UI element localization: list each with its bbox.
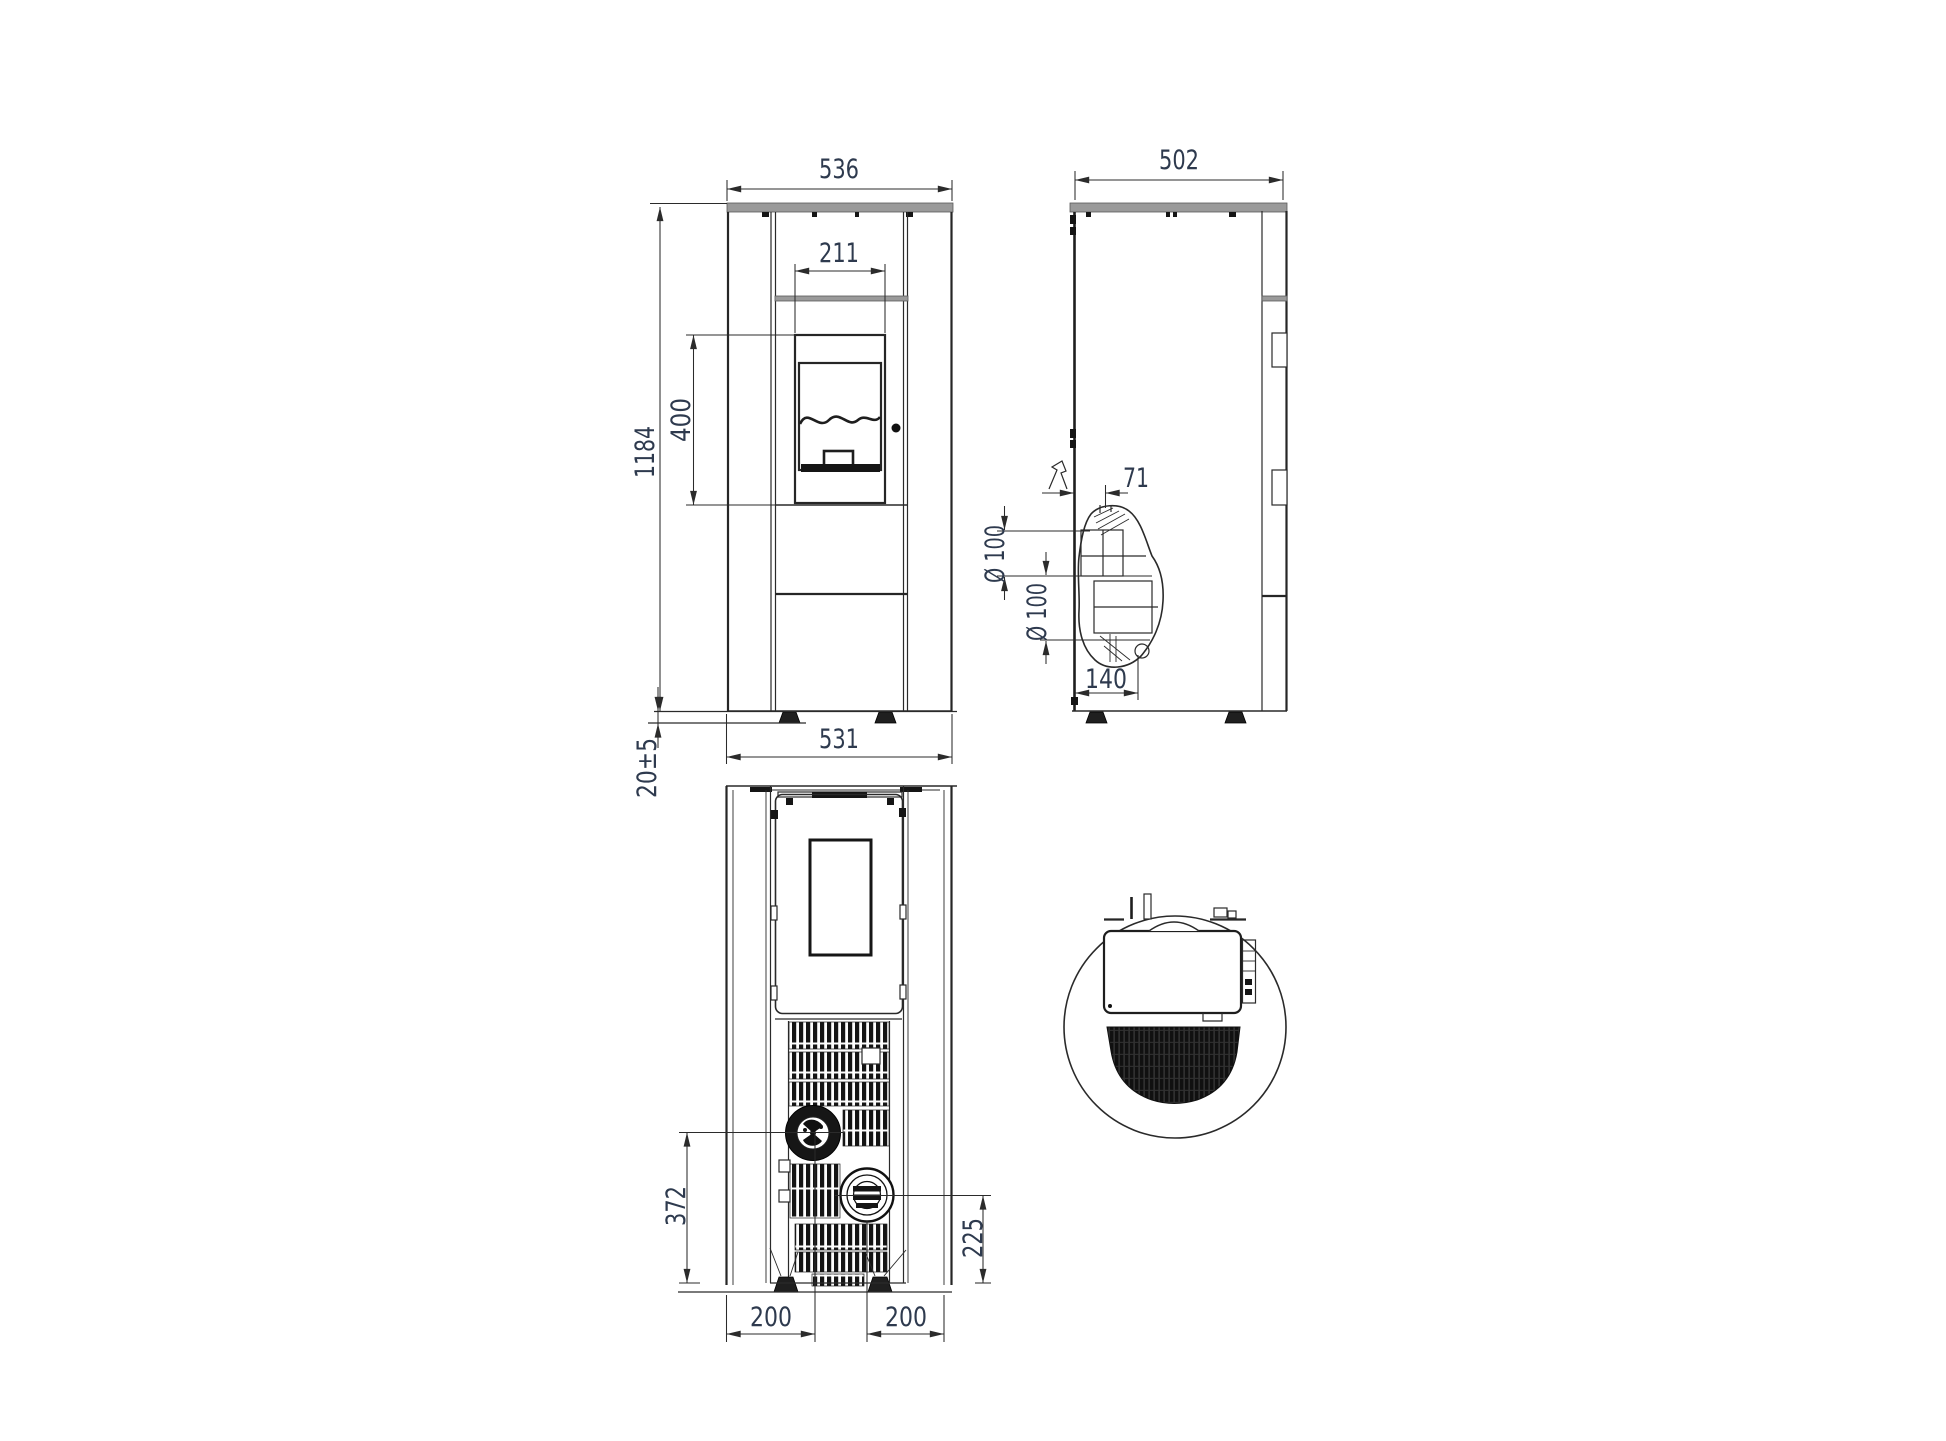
side-foot-left [1086, 712, 1107, 723]
dim-label-flue-depth: 140 [1085, 664, 1127, 695]
front-foot-right [875, 712, 896, 723]
front-foot-left [779, 712, 800, 723]
dim-label-side-depth: 502 [1159, 145, 1199, 176]
side-foot-right [1225, 712, 1246, 723]
detail-top-panel [1104, 931, 1241, 1013]
dim-label-window-height: 400 [666, 398, 697, 442]
dim-label-pipe-top-diameter: Ø 100 [980, 525, 1011, 583]
dim-label-pipe-rear-diameter: Ø 100 [1022, 583, 1053, 641]
dim-label-body-height: 1184 [630, 426, 661, 478]
bottom-foot-left [774, 1277, 798, 1292]
glass-flame-line [800, 417, 880, 424]
dim-side-depth: 502 [1075, 145, 1283, 200]
dim-front-bottom-width: 531 [727, 714, 953, 764]
dim-front-top-width: 536 [727, 154, 952, 201]
dim-flue-depth: 140 [1075, 655, 1138, 700]
exhaust-assembly [1078, 505, 1163, 667]
bottom-foot-right [868, 1277, 892, 1292]
rear-window [810, 840, 871, 955]
dim-label-front-bottom-width: 531 [819, 724, 859, 755]
drawing-page: 536 211 400 1184 20±5 [0, 0, 1946, 1441]
door-handle [892, 424, 901, 433]
dim-foot-height: 20±5 [632, 687, 663, 798]
front-top-plate [727, 203, 953, 212]
dim-label-left-offset: 200 [750, 1302, 792, 1333]
technical-drawing: 536 211 400 1184 20±5 [0, 0, 1946, 1441]
dim-body-height: 1184 [630, 204, 727, 712]
flue-bracket [1049, 461, 1067, 489]
dim-label-foot-height: 20±5 [632, 738, 663, 798]
bottom-view: 372 225 200 200 [661, 786, 991, 1342]
dim-label-air-inlet-height: 372 [661, 1186, 692, 1226]
dim-label-window-width: 211 [819, 238, 859, 269]
side-view: 502 71 Ø 100 Ø 100 140 [980, 145, 1287, 723]
dim-label-flue-offset: 71 [1123, 463, 1149, 494]
dim-label-right-offset: 200 [885, 1302, 927, 1333]
dim-label-flue-outlet-height: 225 [958, 1218, 989, 1258]
dim-window-width: 211 [795, 238, 885, 333]
detail-view [1064, 894, 1286, 1138]
dim-flue-offset: 71 [1042, 463, 1149, 508]
stove-door [795, 335, 901, 503]
front-view: 536 211 400 1184 20±5 [630, 154, 957, 798]
dim-label-front-top-width: 536 [819, 154, 859, 185]
side-top-plate [1070, 203, 1287, 212]
